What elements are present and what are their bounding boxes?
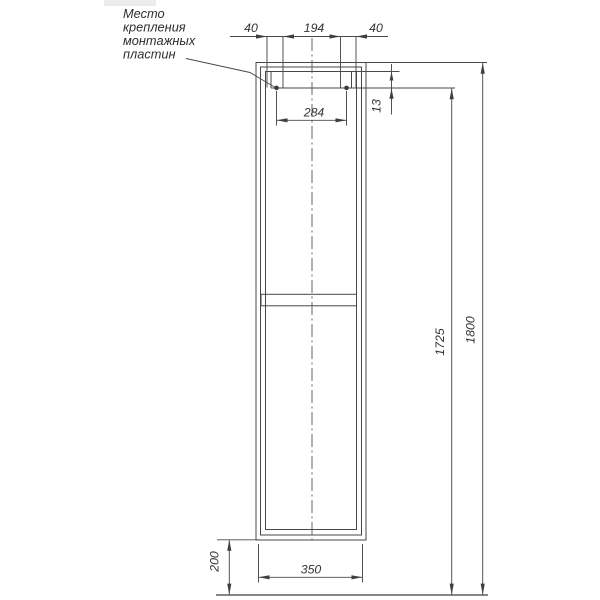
cabinet-front-view-drawing: Место крепления монтажных пластин 40 194… xyxy=(0,0,600,600)
dim-label-40-left: 40 xyxy=(244,21,258,35)
dimension-1800: 1800 xyxy=(366,63,487,595)
annotation-line-4: пластин xyxy=(123,47,176,62)
dim-arrow xyxy=(336,118,347,122)
dimension-top-chain: 40 194 40 xyxy=(230,21,388,88)
dimension-284: 284 xyxy=(277,91,347,126)
mounting-point-left-dot xyxy=(274,86,279,91)
dim-label-284: 284 xyxy=(303,106,325,120)
dim-arrow xyxy=(450,584,454,595)
dim-arrow xyxy=(390,72,394,81)
dim-arrow xyxy=(481,63,485,74)
dim-arrow xyxy=(481,584,485,595)
dim-label-1725: 1725 xyxy=(433,328,447,356)
mounting-point-right-dot xyxy=(344,86,349,91)
dim-label-13: 13 xyxy=(370,99,384,113)
technical-drawing-canvas: Место крепления монтажных пластин 40 194… xyxy=(0,0,600,600)
dim-label-194: 194 xyxy=(304,21,325,35)
dim-arrow xyxy=(227,584,231,595)
dim-arrow xyxy=(227,540,231,551)
dim-arrow xyxy=(283,34,294,38)
dim-arrow xyxy=(450,88,454,99)
dim-arrow xyxy=(352,575,363,579)
dim-arrow xyxy=(259,575,270,579)
dim-arrow xyxy=(356,34,367,38)
dim-arrow xyxy=(256,34,267,38)
dimension-1725: 1725 xyxy=(433,88,454,594)
dimension-13: 13 xyxy=(357,64,400,115)
dim-label-1800: 1800 xyxy=(464,316,478,344)
cabinet-mid-rect xyxy=(261,67,362,535)
cabinet-inner-rect xyxy=(266,72,357,530)
dim-label-40-right: 40 xyxy=(369,21,383,35)
cabinet-outer-rect xyxy=(256,63,366,541)
dimension-350: 350 xyxy=(259,544,363,583)
dim-label-350: 350 xyxy=(301,563,322,577)
dim-arrow xyxy=(330,34,341,38)
dim-arrow xyxy=(389,88,393,99)
leader-annotation: Место крепления монтажных пластин xyxy=(123,6,349,90)
middle-divider-band xyxy=(261,294,357,306)
dim-arrow xyxy=(277,118,288,122)
dim-label-200: 200 xyxy=(208,551,222,573)
dimension-200: 200 xyxy=(208,540,261,595)
cabinet-outline xyxy=(256,38,455,541)
